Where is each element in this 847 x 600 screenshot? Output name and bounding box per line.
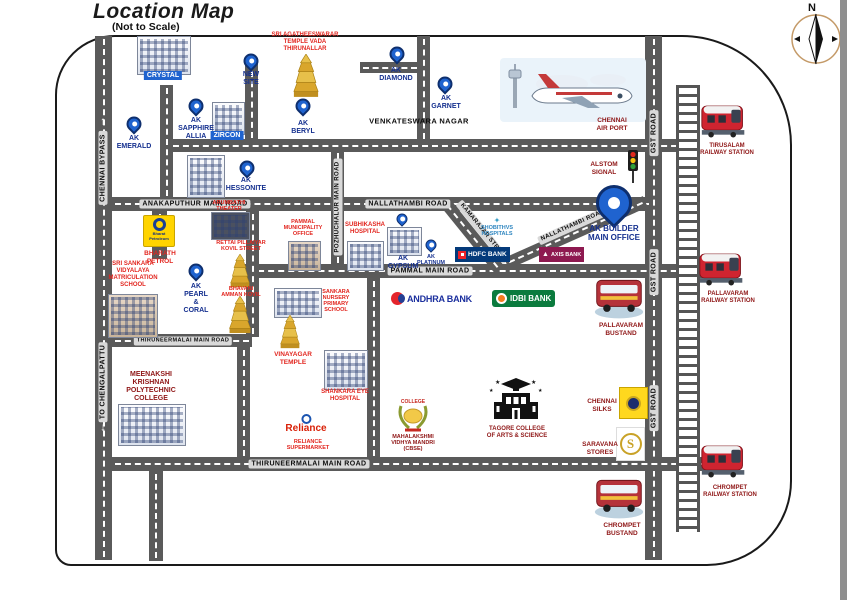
bhavani-temple-lower-icon [224, 296, 256, 334]
label-mahalakshmi: MAHALAKSHMI VIDHYA MANDRI (CBSE) [391, 434, 435, 452]
road-venkateswara [160, 139, 700, 152]
bus-icon-chrompet [593, 476, 645, 520]
label-ak-platinum: AK PLATINUM [417, 254, 445, 266]
svg-text:★: ★ [489, 388, 494, 394]
label-tagore-college: TAGORE COLLEGE OF ARTS & SCIENCE [487, 426, 547, 440]
mahalakshmi-banner-text: COLLEGE [401, 399, 426, 405]
pin-ak-sapphire [189, 99, 204, 114]
andhra-bank-icon [391, 292, 404, 305]
compass-rose-icon [789, 12, 843, 66]
road-label-pozhuchalur: POZHUCHALUR MAIN ROAD [334, 158, 343, 255]
subhikasha-hospital-photo [347, 241, 384, 271]
gypsum-building-photo [387, 227, 422, 256]
pammal-office-photo [288, 241, 321, 271]
svg-text:★: ★ [495, 379, 500, 386]
andhra-bank-label: ANDHRA BANK [407, 294, 472, 304]
label-subhikasha-hospital: SUBHIKASHA HOSPITAL [345, 222, 385, 236]
crystal-name-band: CRYSTAL [144, 71, 182, 80]
axis-bank-logo: ▲ AXIS BANK [539, 247, 584, 262]
pin-ak-pearl-coral [189, 264, 204, 279]
train-icon-chrompet [700, 438, 748, 480]
label-saravana-stores: SARAVANA STORES [582, 441, 618, 456]
crystal-building-photo [137, 36, 191, 75]
label-tirusalam-station: TIRUSALAM RAILWAY STATION [700, 143, 754, 157]
road-diamond-street [417, 36, 430, 142]
road-label-thiruneermalai-lower: THIRUNEERMALAI MAIN ROAD [249, 460, 370, 469]
road-label-nallathambi-h: NALLATHAMBI ROAD [365, 200, 450, 209]
label-ak-beryl: AK BERYL [291, 120, 314, 136]
label-sankara-school: SRI SANKARA VIDYALAYA MATRICULATION SCHO… [108, 261, 157, 289]
label-chennai-airport: CHENNAI AIR PORT [596, 117, 627, 132]
label-ak-garnet: AK GARNET [431, 95, 461, 111]
meenakshi-college-photo [118, 404, 186, 446]
road-label-gst-mid: GST ROAD [650, 249, 659, 295]
sankara-school-photo [108, 294, 158, 338]
idbi-bank-logo: IDBI BANK [492, 290, 555, 307]
train-icon-tirusalam [700, 98, 748, 140]
pin-ak-beryl [296, 99, 311, 114]
pin-ak-platinum [426, 240, 437, 251]
label-chrompet-station: CHROMPET RAILWAY STATION [703, 485, 757, 499]
location-map-page: Location Map (Not to Scale) N ↑ CHENNAI … [0, 0, 847, 600]
tagore-college-icon: ★★ ★★ [487, 376, 545, 424]
label-rettai-kovil-street: RETTAI PILLAIYAR KOVIL STREET [216, 240, 266, 252]
pin-ak-diamond [390, 47, 405, 62]
label-ak-pearl-coral: AK PEARL & CORAL [184, 283, 209, 315]
road-crystal-street [160, 85, 173, 199]
bhavani-temple-upper-icon [226, 254, 254, 288]
pin-ak-gypsum [397, 214, 408, 225]
axis-a-icon: ▲ [542, 251, 549, 258]
label-ak-gypsum: AK GYPSUM [388, 255, 418, 271]
road-label-chennai-bypass: CHENNAI BYPASS [99, 131, 108, 205]
vinayagar-temple-icon [276, 315, 304, 349]
label-vinayagar-temple: VINAYAGAR TEMPLE [274, 351, 312, 366]
pin-ak-builder-office [596, 185, 632, 221]
label-ak-diamond: AK DIAMOND [379, 67, 412, 83]
label-sankara-nursery: SANKARA NURSERY PRIMARY SCHOOL [322, 289, 350, 313]
label-new-site: NEW SITE [243, 71, 259, 87]
label-pallavaram-station: PALLAVARAM RAILWAY STATION [701, 291, 755, 305]
label-arumbathi-theater: ARUMBATHI THEATER [213, 200, 246, 212]
scan-edge-strip [840, 0, 847, 600]
saravana-s-icon: S [620, 433, 642, 455]
chennai-silks-logo [619, 387, 648, 419]
road-college-street [237, 347, 250, 459]
label-chrompet-bustand: CHROMPET BUSTAND [603, 522, 640, 537]
traffic-light-icon [626, 150, 640, 184]
chengalpattu-arrow-down-icon: ↓ [100, 423, 106, 434]
road-label-gst-top: GST ROAD [650, 110, 659, 156]
bharat-ring-icon [153, 218, 166, 231]
hdfc-bank-logo: HDFC BANK [455, 247, 510, 262]
label-agatheeswarar-temple: SRI AGATHEESWARAR TEMPLE VADA THIRUNALLA… [271, 32, 338, 53]
idbi-circle-icon [496, 293, 507, 304]
train-icon-pallavaram [698, 246, 746, 288]
road-school-street [367, 278, 380, 459]
label-reliance-supermarket: RELIANCE SUPERMARKET [287, 439, 329, 451]
road-label-gst-bottom: GST ROAD [650, 385, 659, 431]
axis-bank-label: AXIS BANK [551, 252, 581, 258]
chennai-silks-emblem-icon [626, 396, 641, 411]
hessonite-building-photo [187, 155, 225, 198]
airplane-icon [522, 70, 638, 114]
label-shankara-eye: SHANKARA EYE HOSPITAL [321, 389, 369, 403]
mahalakshmi-emblem-icon: COLLEGE [393, 396, 433, 434]
reliance-logo: Reliance [285, 414, 326, 434]
saravana-stores-logo: S [616, 427, 645, 461]
label-meenakshi-college: MEENAKSHI KRISHNAN POLYTECHNIC COLLEGE [126, 371, 176, 403]
reliance-wordmark: Reliance [285, 424, 326, 434]
bypass-arrow-up-icon: ↑ [100, 117, 106, 128]
pin-ak-hessonite [240, 161, 255, 176]
sankara-nursery-photo [274, 288, 322, 318]
shobithvs-hospitals-logo: ✦ SHOBITHVS HOSPITALS [481, 217, 513, 237]
pin-new-site [244, 54, 259, 69]
shankara-eye-photo [324, 350, 368, 390]
label-ak-builder-office: AK BUILDER MAIN OFFICE [588, 224, 640, 242]
label-bhavani-amman-kovil: BHAVANI AMMAN KOVIL [221, 286, 260, 298]
shobithvs-diamond-icon: ✦ [481, 217, 513, 225]
label-ak-sapphire: AK SAPPHIRE ALLIA [178, 117, 214, 141]
road-bottom-left-street [149, 471, 163, 561]
idbi-bank-label: IDBI BANK [510, 294, 551, 303]
pin-ak-emerald [127, 117, 142, 132]
svg-text:★: ★ [538, 388, 543, 394]
railway-track [676, 85, 700, 532]
label-pallavaram-bustand: PALLAVARAM BUSTAND [599, 322, 643, 337]
agatheeswarar-temple-icon [288, 54, 324, 98]
label-chennai-silks: CHENNAI SILKS [587, 398, 617, 413]
bharat-petroleum-logo: Bharat Petroleum [143, 215, 175, 247]
road-label-to-chengalpattu: TO CHENGALPATTU [99, 342, 108, 422]
bus-icon-pallavaram [593, 276, 645, 320]
arumbathi-theater-photo [211, 212, 250, 240]
zircon-name-band: ZIRCON [211, 131, 244, 140]
label-alstom-signal: ALSTOM SIGNAL [590, 161, 617, 176]
label-ak-hessonite: AK HESSONITE [226, 177, 266, 193]
hdfc-bank-label: HDFC BANK [468, 251, 507, 258]
bharat-petroleum-label: Bharat Petroleum [144, 231, 174, 241]
hdfc-square-icon [458, 251, 466, 259]
road-label-venkateswara: VENKATESWARA NAGAR [366, 117, 472, 126]
label-ak-emerald: AK EMERALD [117, 135, 152, 151]
page-subtitle: (Not to Scale) [112, 21, 180, 33]
andhra-bank-logo: ANDHRA BANK [391, 292, 472, 305]
shobithvs-label: SHOBITHVS HOSPITALS [481, 225, 513, 237]
label-pammal-office: PAMMAL MUNICIPALITY OFFICE [284, 219, 323, 237]
pin-ak-garnet [438, 77, 453, 92]
svg-text:★: ★ [531, 379, 536, 386]
